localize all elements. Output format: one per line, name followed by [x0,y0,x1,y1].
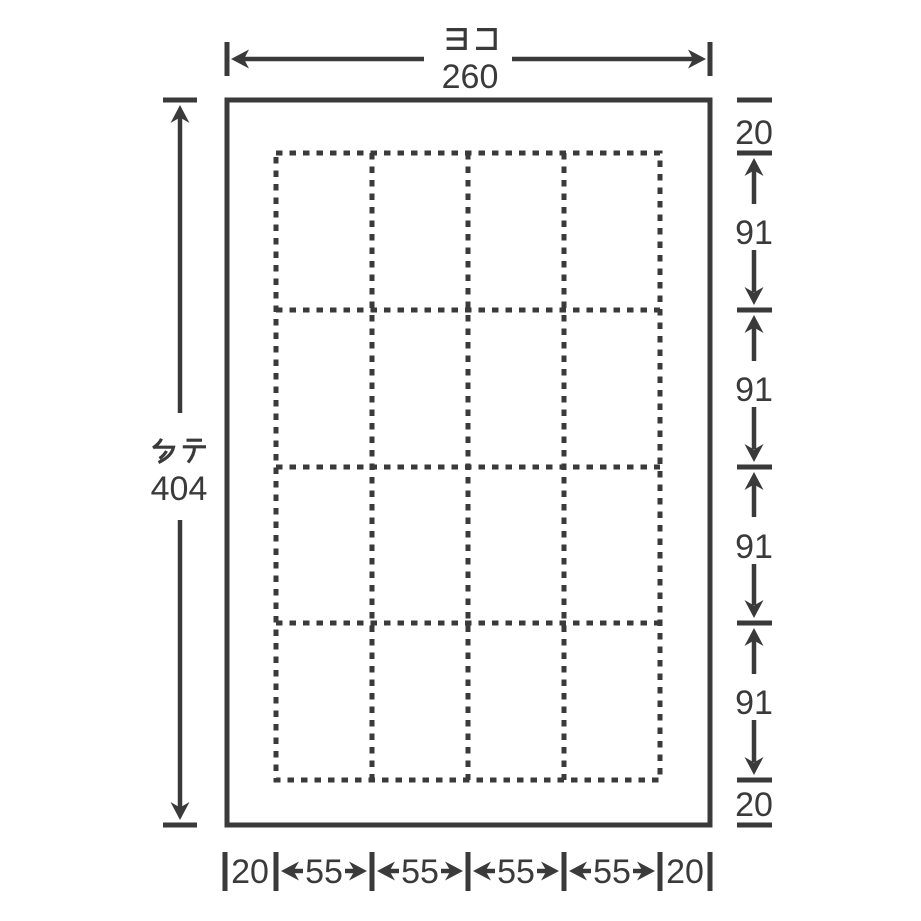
bottom-cell-3-value: 55 [497,853,535,891]
dimension-bottom: 20 55 55 55 55 20 [225,852,710,891]
width-value: 260 [442,58,499,96]
right-margin-top-value: 20 [735,114,773,152]
height-value: 404 [151,470,208,508]
sheet-dimension-diagram: ヨコ 260 タテ 404 20 91 [0,0,921,921]
right-cell-2-value: 91 [735,371,773,409]
bottom-cell-4-value: 55 [593,853,631,891]
right-cell-3-value: 91 [735,528,773,566]
height-label-text: タテ [155,440,203,467]
bottom-cell-2-value: 55 [401,853,439,891]
diagram-canvas: ヨコ 260 タテ 404 20 91 [0,0,921,921]
dimension-left: タテ 404 [151,100,208,825]
bottom-margin-right-value: 20 [666,853,704,891]
bottom-cell-1-value: 55 [305,853,343,891]
right-margin-bottom-value: 20 [735,786,773,824]
width-label-text: ヨコ [447,27,495,54]
bottom-margin-left-value: 20 [231,853,269,891]
dimension-top: ヨコ 260 [227,27,710,96]
right-cell-4-value: 91 [735,684,773,722]
dimension-right: 20 91 91 91 91 20 [735,100,773,825]
right-cell-1-value: 91 [735,214,773,252]
